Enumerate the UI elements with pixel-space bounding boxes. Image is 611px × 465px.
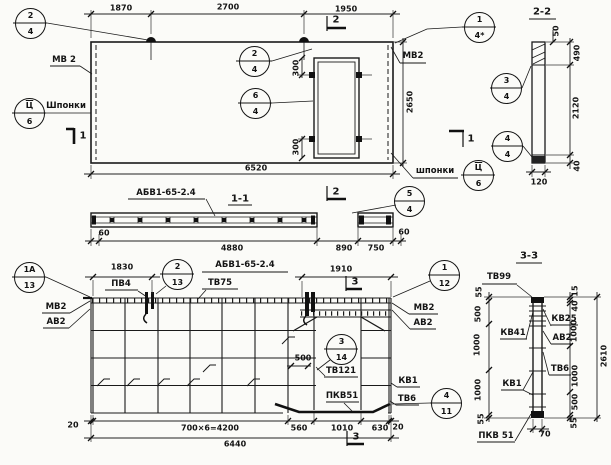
dim-1000-l1: 1000 [473,334,482,356]
callout-circle: 1А13 [14,262,45,293]
callout-circle-keys: Ц6 [14,98,45,129]
dim-55-l1: 55 [475,286,484,297]
label-tv6-plan: ТВ6 [398,394,416,404]
label-tv99: ТВ99 [487,272,511,282]
dim-6520: 6520 [245,164,267,173]
callout-circle: 54 [394,186,425,217]
dim-2610: 2610 [600,345,609,367]
label-pkv51-plan: ПКВ51 [326,391,358,401]
lifting-loop-icon [299,37,309,42]
cut-marker-1-right: 1 [468,134,475,145]
dim-500-r: 500 [571,394,580,411]
callout-circle: 213 [162,259,193,290]
label-tv75: ТВ75 [208,278,232,288]
section-1-1-view [91,213,393,227]
dim-1000-r2: 1000 [571,365,580,387]
section-2-2-view [532,42,545,163]
label-mv2-plan-left: МВ2 [46,302,67,312]
dim-1000-l2: 1000 [474,379,483,401]
dim-1830: 1830 [111,263,133,272]
title-plan-mark: АБВ1-65-2.4 [215,260,274,270]
dim-750: 750 [368,244,385,253]
label-tv121: ТВ121 [326,366,356,376]
label-mv2-left: МВ 2 [52,55,76,65]
dim-20-right: 20 [392,423,403,432]
dim-15-r: 15 [571,285,580,296]
label-av2-plan-right: АВ2 [414,318,433,328]
dim-500-l: 500 [474,306,483,323]
dim-1010: 1010 [331,424,353,433]
label-keys-left: Шпонки [46,101,86,111]
title-section-1-1: 1-1 [231,194,249,205]
dim-55-l2: 55 [477,413,486,424]
callout-circle: 314 [326,334,357,365]
callout-circle: 112 [429,260,460,291]
callout-circle: 24 [15,8,46,39]
dim-630: 630 [372,424,389,433]
dim-55-r: 55 [570,417,579,428]
section-3-3-view [529,297,546,418]
dim-500: 500 [295,354,312,363]
callout-circle: 34 [491,73,522,104]
cut-marker-2-top: 2 [333,15,340,26]
cut-marker-1-left: 1 [80,131,87,142]
dim-6440: 6440 [224,440,246,449]
label-mv2-right: МВ2 [403,51,424,61]
callout-circle-keys: Ц6 [463,160,494,191]
callout-circle: 24 [239,46,270,77]
engineering-drawing-sheet: 1870 2700 1950 МВ 2 Шпонки 300 300 2650 … [0,0,611,465]
callout-circle: 44 [492,131,523,162]
label-av2-plan-left: АВ2 [47,317,66,327]
dim-700x6: 700×6=4200 [181,424,239,433]
label-kv1-plan: КВ1 [398,376,417,386]
bent-bar-pkv51 [275,404,390,412]
dim-70: 70 [539,430,550,439]
callout-circle: 411 [431,388,462,419]
label-panel-mark: АБВ1-65-2.4 [136,188,195,198]
label-kv41: КВ41 [500,328,525,338]
drawing-linework [0,0,611,465]
callout-circle: 64 [240,88,271,119]
label-mv2-plan-right: МВ2 [414,303,435,313]
dim-60-left: 60 [98,229,109,238]
dim-300-top: 300 [292,60,301,77]
dim-120: 120 [531,178,548,187]
dim-40: 40 [573,160,582,171]
dim-2700: 2700 [217,3,239,12]
dim-1950: 1950 [335,5,357,14]
callout-circle: 14* [464,12,495,43]
label-pv4: ПВ4 [111,279,131,289]
label-pkv51-33: ПКВ 51 [478,431,513,441]
lifting-loop-icon [146,37,156,42]
dim-2120: 2120 [572,97,581,119]
label-tv6-33: ТВ6 [551,364,569,374]
dim-1000-r1: 1000 [570,320,579,342]
label-kv1-33: КВ1 [502,379,521,389]
label-keys-right: шпонки [416,166,454,176]
dim-40-r: 40 [571,300,580,311]
cut-marker-3-bottom: 3 [353,432,360,443]
cut-marker-2-bottom: 2 [333,187,340,198]
dim-890: 890 [336,244,353,253]
plan-lifting-loops [145,292,315,316]
dim-560: 560 [291,424,308,433]
dim-1870: 1870 [110,4,132,13]
dim-50: 50 [552,25,561,36]
dim-2650: 2650 [406,91,415,113]
title-section-2-2: 2-2 [533,7,551,18]
title-section-3-3: 3-3 [520,251,538,262]
dim-60-right: 60 [398,228,409,237]
dim-20-left: 20 [67,421,78,430]
dim-4880: 4880 [221,244,243,253]
dim-490: 490 [573,45,582,62]
cut-marker-3-top: 3 [352,277,359,288]
dim-300-bottom: 300 [292,139,301,156]
dim-1910: 1910 [330,265,352,274]
